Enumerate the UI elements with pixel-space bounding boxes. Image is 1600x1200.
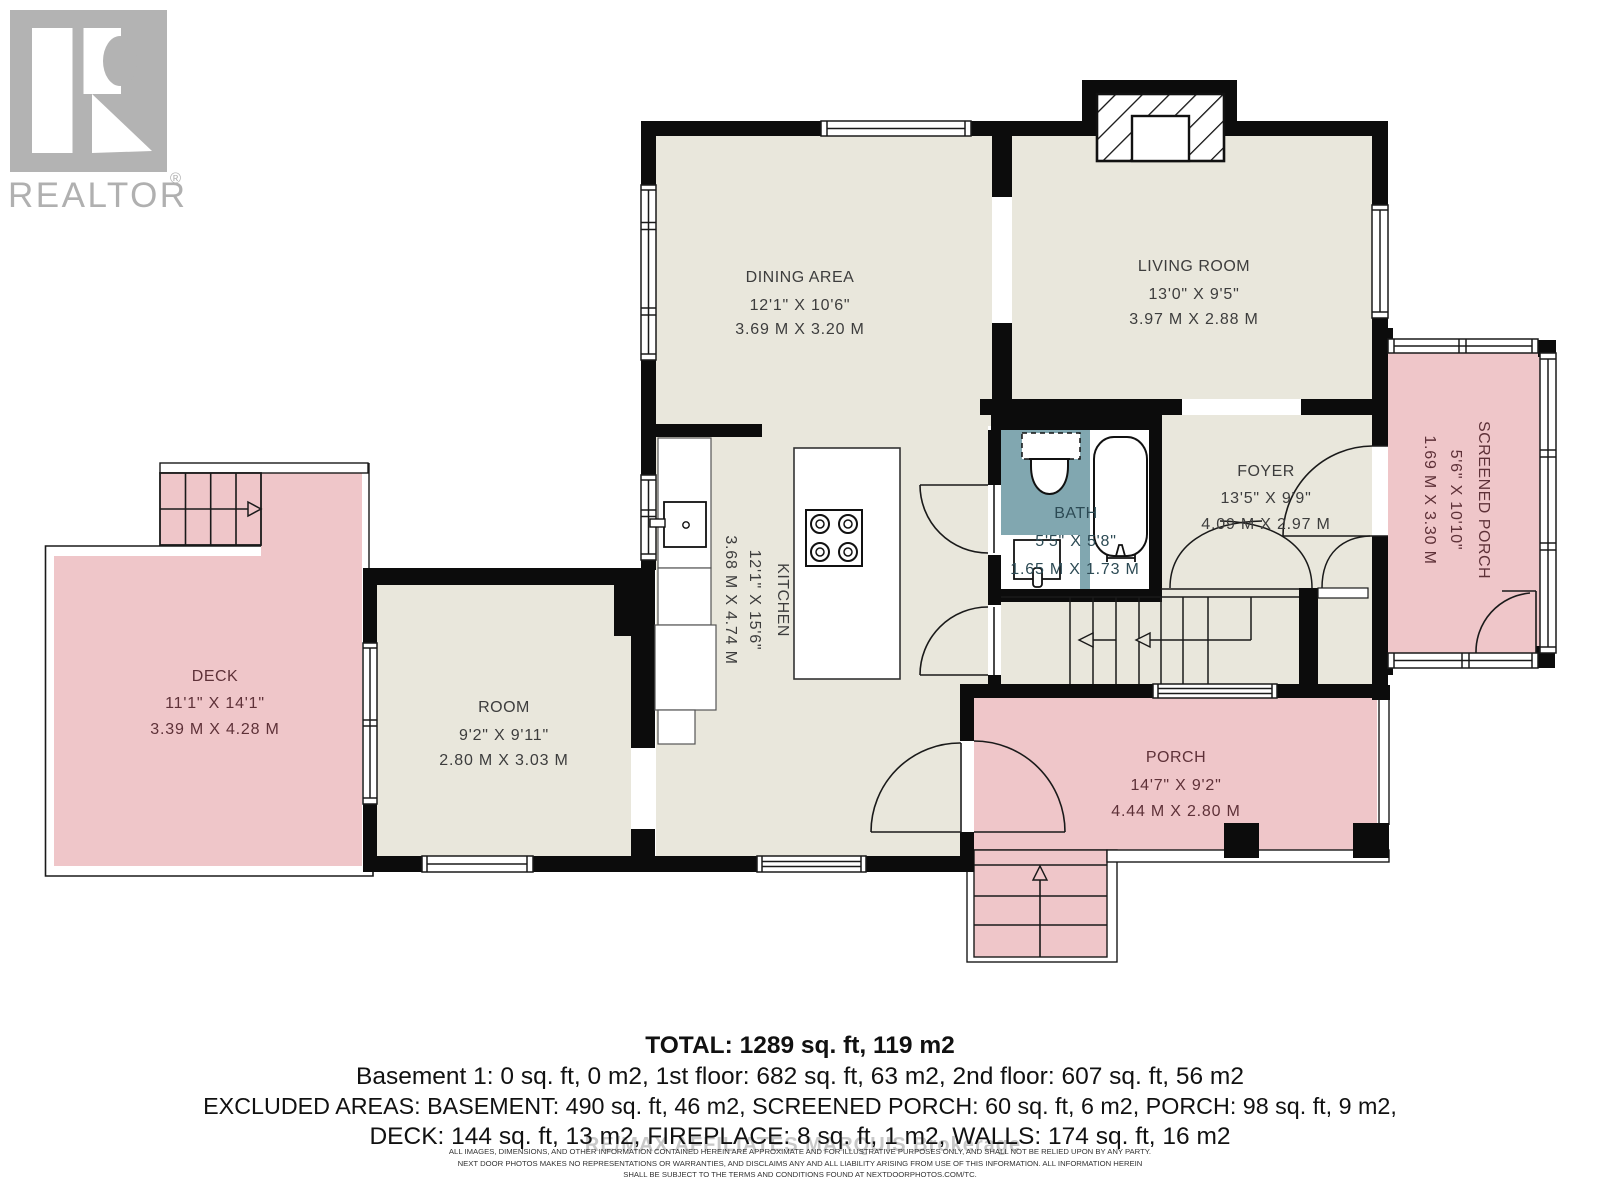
svg-text:2.80 M X 3.03 M: 2.80 M X 3.03 M bbox=[439, 752, 568, 769]
svg-text:5'6" X 10'10": 5'6" X 10'10" bbox=[1447, 450, 1464, 551]
svg-text:SHALL BE SUBJECT TO THE TERMS: SHALL BE SUBJECT TO THE TERMS AND CONDIT… bbox=[623, 1170, 977, 1179]
svg-text:4.09 M X 2.97 M: 4.09 M X 2.97 M bbox=[1201, 516, 1330, 533]
svg-text:ROOM: ROOM bbox=[478, 699, 530, 716]
svg-text:4.44 M X 2.80 M: 4.44 M X 2.80 M bbox=[1111, 803, 1240, 820]
svg-text:BATH: BATH bbox=[1054, 505, 1097, 522]
svg-text:KITCHEN: KITCHEN bbox=[774, 563, 791, 637]
svg-text:EXCLUDED AREAS: BASEMENT: 490: EXCLUDED AREAS: BASEMENT: 490 sq. ft, 46… bbox=[203, 1093, 1397, 1119]
svg-text:13'0" X 9'5": 13'0" X 9'5" bbox=[1148, 286, 1239, 303]
svg-text:PORCH: PORCH bbox=[1146, 749, 1206, 766]
svg-text:NEXT DOOR PHOTOS MAKES NO REPR: NEXT DOOR PHOTOS MAKES NO REPRESENTATION… bbox=[458, 1159, 1143, 1168]
svg-text:14'7" X 9'2": 14'7" X 9'2" bbox=[1130, 777, 1221, 794]
svg-text:12'1" X 10'6": 12'1" X 10'6" bbox=[750, 297, 851, 314]
svg-text:FOYER: FOYER bbox=[1237, 463, 1295, 480]
svg-text:11'1" X 14'1": 11'1" X 14'1" bbox=[165, 695, 265, 712]
svg-text:Basement 1: 0 sq. ft, 0 m2, 1s: Basement 1: 0 sq. ft, 0 m2, 1st floor: 6… bbox=[356, 1063, 1244, 1090]
svg-text:DINING AREA: DINING AREA bbox=[746, 269, 855, 286]
svg-text:SCREENED PORCH: SCREENED PORCH bbox=[1475, 421, 1492, 579]
svg-text:ALL IMAGES, DIMENSIONS, AND OT: ALL IMAGES, DIMENSIONS, AND OTHER INFORM… bbox=[449, 1147, 1151, 1156]
svg-text:1.65 M X 1.73 M: 1.65 M X 1.73 M bbox=[1010, 561, 1139, 578]
svg-text:5'5" X 5'8": 5'5" X 5'8" bbox=[1035, 533, 1116, 550]
svg-text:3.97 M X 2.88 M: 3.97 M X 2.88 M bbox=[1129, 311, 1258, 328]
svg-text:3.69 M X 3.20 M: 3.69 M X 3.20 M bbox=[735, 321, 864, 338]
svg-text:TOTAL: 1289 sq. ft, 119 m2: TOTAL: 1289 sq. ft, 119 m2 bbox=[645, 1032, 955, 1059]
svg-text:1.69 M X 3.30 M: 1.69 M X 3.30 M bbox=[1421, 435, 1438, 564]
svg-text:12'1" X 15'6": 12'1" X 15'6" bbox=[746, 550, 763, 651]
svg-text:DECK: DECK bbox=[192, 668, 238, 685]
svg-text:®: ® bbox=[170, 170, 181, 187]
svg-text:13'5" X 9'9": 13'5" X 9'9" bbox=[1220, 490, 1311, 507]
svg-text:DECK: 144 sq. ft, 13 m2, FIREP: DECK: 144 sq. ft, 13 m2, FIREPLACE: 8 sq… bbox=[369, 1123, 1230, 1150]
svg-text:REALTOR: REALTOR bbox=[8, 176, 188, 215]
svg-text:9'2" X 9'11": 9'2" X 9'11" bbox=[459, 727, 549, 744]
svg-text:3.68 M X 4.74 M: 3.68 M X 4.74 M bbox=[722, 535, 739, 664]
svg-text:3.39 M X 4.28 M: 3.39 M X 4.28 M bbox=[150, 721, 279, 738]
svg-text:LIVING ROOM: LIVING ROOM bbox=[1138, 258, 1250, 275]
